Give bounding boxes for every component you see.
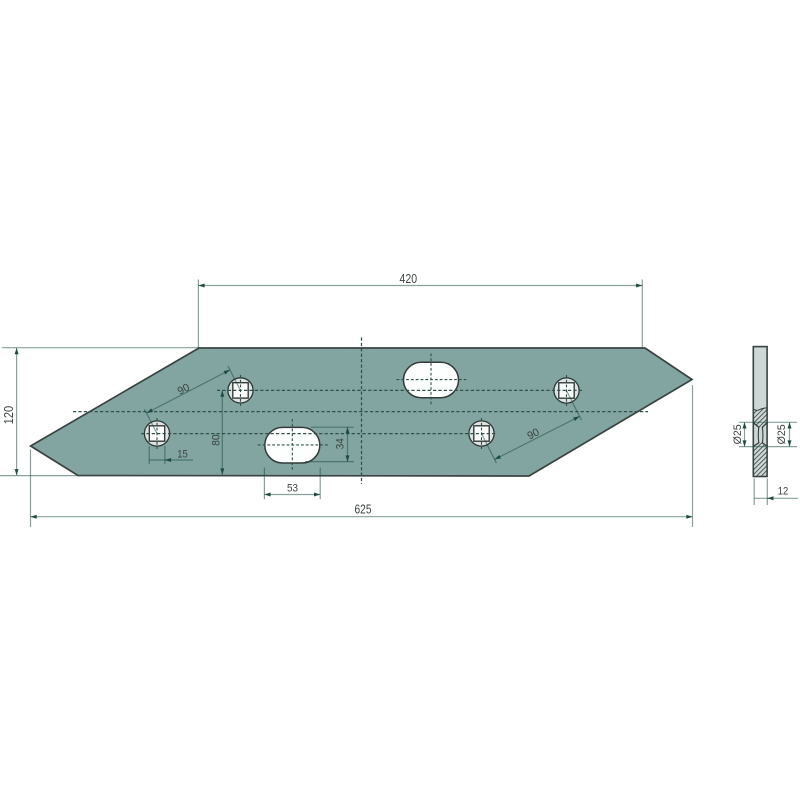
- svg-text:12: 12: [778, 486, 789, 498]
- svg-text:34: 34: [335, 438, 347, 449]
- svg-text:420: 420: [400, 271, 418, 286]
- svg-text:Ø25: Ø25: [732, 424, 744, 444]
- svg-text:80: 80: [211, 434, 223, 446]
- svg-text:Ø25: Ø25: [776, 424, 788, 444]
- svg-text:53: 53: [287, 483, 298, 495]
- svg-text:120: 120: [1, 406, 16, 425]
- svg-text:15: 15: [177, 449, 188, 461]
- svg-text:625: 625: [355, 502, 372, 517]
